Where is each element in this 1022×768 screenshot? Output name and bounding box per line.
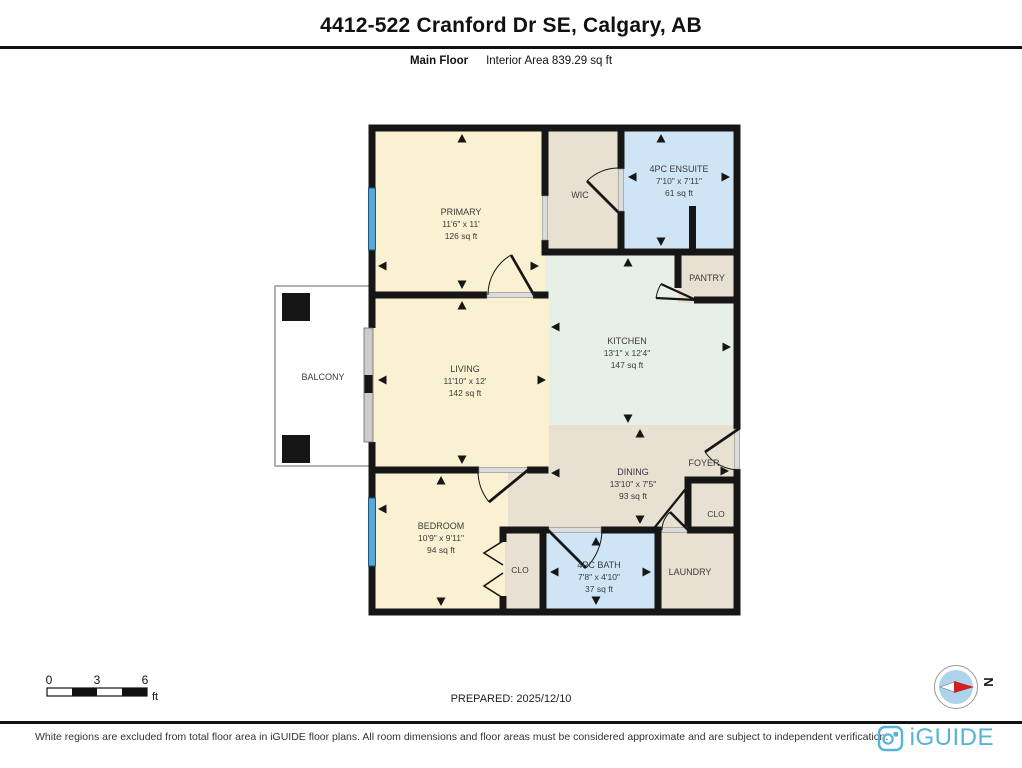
label-wic: WIC bbox=[571, 190, 589, 200]
svg-text:7'10" x 7'11": 7'10" x 7'11" bbox=[656, 176, 702, 186]
svg-text:11'6" x 11': 11'6" x 11' bbox=[442, 219, 480, 229]
label-laundry: LAUNDRY bbox=[669, 567, 712, 577]
svg-text:94 sq ft: 94 sq ft bbox=[427, 545, 456, 555]
window bbox=[369, 498, 376, 566]
label-bedroom-closet: CLO bbox=[511, 565, 529, 575]
svg-text:61 sq ft: 61 sq ft bbox=[665, 188, 694, 198]
svg-text:CLO: CLO bbox=[707, 509, 725, 519]
svg-text:KITCHEN: KITCHEN bbox=[607, 336, 647, 346]
svg-text:FOYER: FOYER bbox=[688, 458, 720, 468]
scale-tick-6: 6 bbox=[142, 673, 149, 687]
svg-text:4PC ENSUITE: 4PC ENSUITE bbox=[649, 164, 708, 174]
label-balcony: BALCONY bbox=[301, 372, 344, 382]
svg-text:7'8" x 4'10": 7'8" x 4'10" bbox=[578, 572, 620, 582]
label-foyer: FOYER bbox=[688, 458, 720, 468]
svg-text:4PC BATH: 4PC BATH bbox=[577, 560, 620, 570]
floorplan-drawing: PRIMARY 11'6" x 11' 126 sq ft WIC 4PC EN… bbox=[0, 0, 1022, 768]
svg-text:BALCONY: BALCONY bbox=[301, 372, 344, 382]
svg-text:CLO: CLO bbox=[511, 565, 529, 575]
svg-text:11'10" x 12': 11'10" x 12' bbox=[444, 376, 487, 386]
window bbox=[369, 188, 376, 250]
scale-tick-3: 3 bbox=[94, 673, 101, 687]
svg-text:LIVING: LIVING bbox=[450, 364, 480, 374]
svg-text:126 sq ft: 126 sq ft bbox=[445, 231, 478, 241]
svg-text:PRIMARY: PRIMARY bbox=[441, 207, 482, 217]
prepared-date: PREPARED: 2025/12/10 bbox=[0, 693, 1022, 705]
svg-text:13'1" x 12'4": 13'1" x 12'4" bbox=[604, 348, 651, 358]
compass-north-label: N bbox=[981, 677, 996, 686]
svg-text:147 sq ft: 147 sq ft bbox=[611, 360, 644, 370]
balcony-post bbox=[282, 293, 310, 321]
floorplan-page: 4412-522 Cranford Dr SE, Calgary, AB Mai… bbox=[0, 0, 1022, 768]
iguide-logo-icon bbox=[877, 725, 904, 752]
room-hall bbox=[505, 470, 549, 535]
iguide-logo: iGUIDE bbox=[877, 724, 994, 752]
svg-text:WIC: WIC bbox=[571, 190, 589, 200]
svg-text:DINING: DINING bbox=[617, 467, 649, 477]
iguide-logo-text: iGUIDE bbox=[910, 724, 994, 752]
svg-text:93 sq ft: 93 sq ft bbox=[619, 491, 648, 501]
svg-text:13'10" x 7'5": 13'10" x 7'5" bbox=[610, 479, 657, 489]
footer-divider bbox=[0, 721, 1022, 724]
svg-text:BEDROOM: BEDROOM bbox=[418, 521, 465, 531]
svg-text:142 sq ft: 142 sq ft bbox=[449, 388, 482, 398]
balcony-post bbox=[282, 435, 310, 463]
svg-text:LAUNDRY: LAUNDRY bbox=[669, 567, 712, 577]
svg-text:PANTRY: PANTRY bbox=[689, 273, 725, 283]
label-primary: PRIMARY 11'6" x 11' 126 sq ft bbox=[441, 207, 482, 241]
svg-text:10'9" x 9'11": 10'9" x 9'11" bbox=[418, 533, 464, 543]
svg-text:37 sq ft: 37 sq ft bbox=[585, 584, 614, 594]
footer-disclaimer: White regions are excluded from total fl… bbox=[35, 731, 888, 743]
scale-tick-0: 0 bbox=[46, 673, 53, 687]
sliding-door-handle bbox=[365, 375, 373, 393]
label-foyer-closet: CLO bbox=[707, 509, 725, 519]
label-pantry: PANTRY bbox=[689, 273, 725, 283]
